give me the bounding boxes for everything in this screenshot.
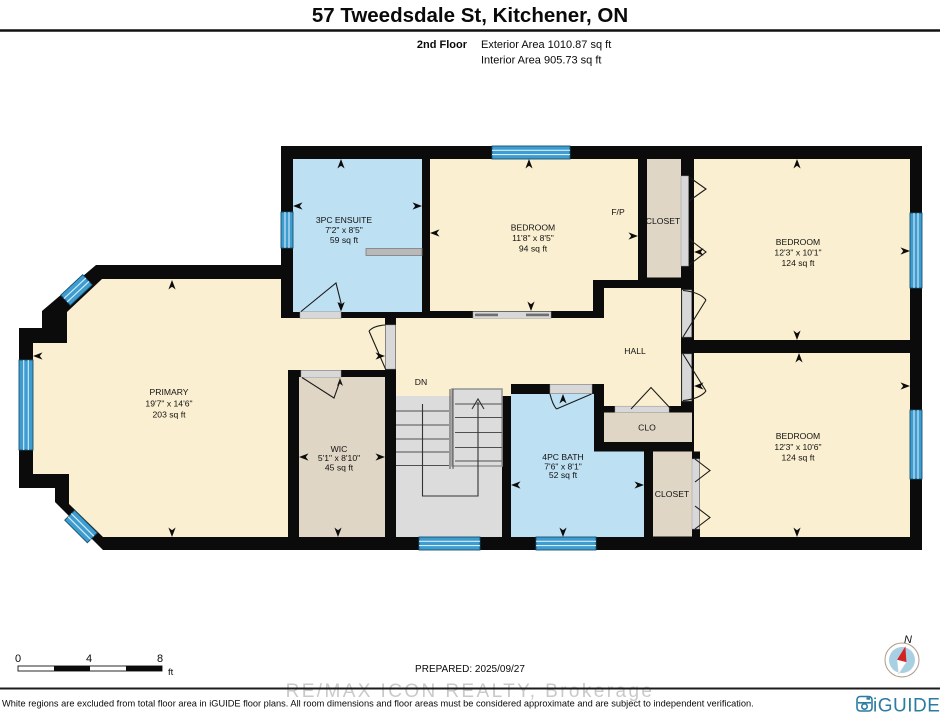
svg-text:94 sq ft: 94 sq ft	[519, 244, 548, 254]
svg-text:59 sq ft: 59 sq ft	[330, 235, 359, 245]
svg-text:5'1" x 8'10": 5'1" x 8'10"	[318, 453, 360, 463]
svg-text:203 sq ft: 203 sq ft	[153, 409, 187, 419]
svg-text:11'8" x 8'5": 11'8" x 8'5"	[512, 233, 554, 243]
svg-text:Interior Area 905.73 sq ft: Interior Area 905.73 sq ft	[481, 55, 601, 67]
svg-text:124 sq ft: 124 sq ft	[782, 453, 816, 463]
svg-text:12'3" x 10'1": 12'3" x 10'1"	[774, 248, 821, 258]
svg-text:12'3" x 10'6": 12'3" x 10'6"	[774, 442, 821, 452]
svg-text:CLOSET: CLOSET	[646, 216, 681, 226]
svg-text:HALL: HALL	[624, 346, 646, 356]
svg-text:iGUIDE: iGUIDE	[873, 696, 940, 717]
svg-text:White regions are excluded fro: White regions are excluded from total fl…	[2, 699, 754, 709]
svg-text:BEDROOM: BEDROOM	[776, 431, 820, 441]
svg-text:2nd Floor: 2nd Floor	[417, 39, 468, 51]
svg-text:DN: DN	[415, 377, 427, 387]
svg-text:7'2" x 8'5": 7'2" x 8'5"	[325, 225, 363, 235]
svg-text:3PC ENSUITE: 3PC ENSUITE	[316, 215, 373, 225]
svg-text:45 sq ft: 45 sq ft	[325, 463, 354, 473]
svg-text:BEDROOM: BEDROOM	[511, 223, 555, 233]
svg-text:PRIMARY: PRIMARY	[150, 387, 189, 397]
svg-text:57 Tweedsdale St, Kitchener, O: 57 Tweedsdale St, Kitchener, ON	[312, 4, 628, 27]
svg-text:ft: ft	[168, 667, 174, 678]
svg-text:52 sq ft: 52 sq ft	[549, 470, 578, 480]
svg-text:8: 8	[157, 653, 163, 665]
svg-text:PREPARED: 2025/09/27: PREPARED: 2025/09/27	[415, 664, 525, 675]
svg-text:CLO: CLO	[638, 423, 656, 433]
svg-text:F/P: F/P	[611, 207, 625, 217]
svg-text:124 sq ft: 124 sq ft	[782, 258, 816, 268]
svg-text:Exterior Area 1010.87 sq ft: Exterior Area 1010.87 sq ft	[481, 39, 611, 51]
svg-text:CLOSET: CLOSET	[655, 489, 690, 499]
svg-text:N: N	[904, 634, 912, 646]
svg-text:19'7" x 14'6": 19'7" x 14'6"	[145, 398, 192, 408]
svg-text:4: 4	[86, 653, 92, 665]
svg-text:0: 0	[15, 653, 21, 665]
svg-text:4PC BATH: 4PC BATH	[542, 452, 583, 462]
svg-text:BEDROOM: BEDROOM	[776, 237, 820, 247]
